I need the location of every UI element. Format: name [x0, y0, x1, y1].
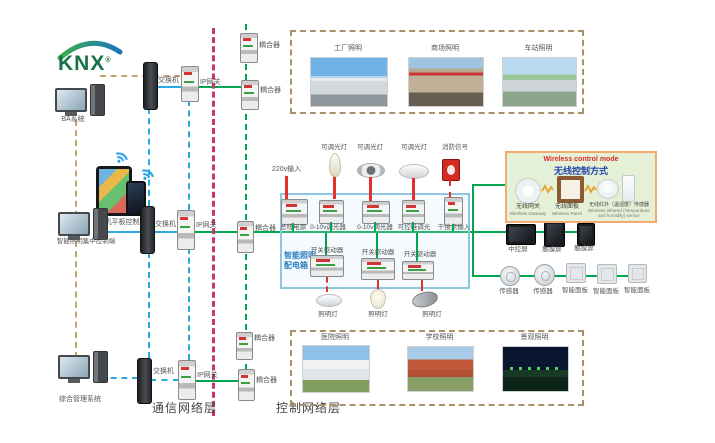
school-caption: 学校照明 — [407, 334, 472, 342]
knx-logo: KNX® — [58, 52, 112, 76]
ba-computer-monitor — [55, 88, 87, 112]
lan-link-line — [156, 86, 182, 88]
ip-gateway — [178, 360, 196, 400]
ba-computer-label: BA系统 — [50, 116, 96, 124]
line-coupler — [241, 80, 259, 110]
wireless-gateway-label-zh: 无线网关 — [516, 204, 540, 210]
dimmable-lamp-label: 可调光灯 — [395, 144, 433, 151]
wireless-control-box: Wireless control mode 无线控制方式 无线网关 Wirele… — [505, 151, 657, 223]
fire-signal-line — [449, 180, 451, 198]
smart-panel-device — [597, 264, 617, 284]
coupler-label: 耦合器 — [260, 87, 281, 95]
candle-lamp-icon — [329, 153, 341, 177]
landscape-photo — [502, 346, 569, 392]
wireless-sensor-module-icon — [622, 175, 635, 202]
touch-screen — [577, 223, 595, 246]
lamp-label: 照明灯 — [308, 311, 348, 318]
line-coupler — [237, 221, 254, 253]
wireless-sensor-label-en: Wireless infrared (Temperature and humid… — [586, 208, 652, 219]
management-computer-tower — [93, 351, 108, 383]
lan-link-line — [150, 379, 179, 381]
knx-logo-text: KNX — [58, 52, 105, 75]
ip-gateway — [177, 210, 195, 250]
monitor-computer-monitor — [58, 212, 90, 236]
wireless-gateway-labels: 无线网关 Wireless Gateway — [507, 204, 549, 217]
management-computer-monitor — [58, 355, 90, 379]
switch-label: 交换机 — [158, 77, 179, 85]
lan-trunk-line — [188, 100, 190, 210]
load-line — [421, 280, 423, 291]
smart-panel-device — [628, 264, 647, 283]
sensor-label: 传感器 — [494, 288, 524, 295]
fire-signal-label: 消防信号 — [436, 144, 474, 151]
switch-label: 交换机 — [155, 221, 176, 229]
knx-stub-line — [374, 222, 376, 232]
switch-actuator-device — [361, 258, 395, 280]
ip-gateway-label: IP网关 — [200, 79, 221, 87]
knx-stub-line — [330, 222, 332, 232]
line-coupler — [238, 369, 255, 401]
switch-actuator-label: 开关驱动器 — [356, 249, 400, 256]
factory-caption: 工厂照明 — [310, 45, 386, 53]
switch-actuator-label: 开关驱动器 — [305, 247, 349, 254]
hospital-photo — [302, 345, 370, 393]
bus-power-device — [281, 199, 308, 225]
ethernet-switch — [143, 62, 158, 110]
load-line — [412, 178, 415, 200]
monitor-computer-label: 智能照明集中控制端 — [36, 238, 136, 245]
line-coupler — [236, 332, 253, 360]
line-coupler — [240, 33, 258, 63]
smart-panel-label: 智能面板 — [589, 288, 623, 295]
dimmer-0-10v-device — [362, 201, 390, 224]
ethernet-switch — [140, 206, 155, 254]
central-screen-label: 中控屏 — [502, 246, 534, 253]
comm-layer-label: 通信网络层 — [152, 402, 217, 416]
knx-bus-line — [194, 380, 240, 382]
knx-stub-line — [412, 222, 414, 232]
spot-lamp-icon — [411, 289, 440, 310]
load-line — [326, 277, 328, 292]
sensor-device — [534, 264, 555, 286]
dry-contact-input-device — [444, 197, 463, 226]
ip-gateway-label: IP网关 — [196, 222, 217, 230]
power-input-label: 220v输入 — [272, 166, 301, 174]
wireless-panel-labels: 无线面板 Wireless Panel — [549, 204, 585, 217]
ceiling-lamp-icon — [399, 164, 429, 179]
wireless-gateway-icon — [515, 178, 541, 204]
dimmer-label: 0-10v调光器 — [302, 224, 354, 231]
load-line — [377, 280, 379, 289]
touch-screen-label: 触摸屏 — [538, 246, 566, 253]
sensor-device — [500, 266, 520, 286]
load-line — [369, 177, 372, 201]
coupler-label: 耦合器 — [254, 335, 275, 343]
mall-photo — [408, 57, 484, 107]
knx-stub-line — [452, 224, 454, 232]
ethernet-switch — [137, 358, 152, 404]
central-control-screen — [506, 224, 536, 245]
knx-bus-line — [473, 184, 506, 186]
switch-actuator-device — [402, 261, 434, 280]
ba-computer-tower — [90, 84, 105, 116]
lamp-label: 照明灯 — [358, 311, 398, 318]
lamp-label: 照明灯 — [412, 311, 452, 318]
lan-trunk-line — [148, 252, 150, 358]
wireless-panel-icon — [557, 176, 584, 203]
hospital-caption: 医院照明 — [302, 334, 368, 342]
lan-trunk-line — [148, 108, 150, 206]
bulb-lamp-icon — [370, 289, 386, 309]
lan-link-line — [153, 231, 178, 233]
lan-trunk-line — [188, 248, 190, 360]
dimmable-lamp-label: 可调光灯 — [351, 144, 389, 151]
station-caption: 车站照明 — [502, 45, 575, 53]
rf-link-icon — [584, 183, 597, 195]
diagram-canvas: KNX® BA系统 手机平板控制端 智能照明集中控制端 综合管理系统 交换机 交… — [0, 0, 715, 443]
mall-caption: 商场照明 — [408, 45, 482, 53]
smart-panel-device — [566, 263, 586, 283]
switch-label: 交换机 — [153, 368, 174, 376]
touch-screen — [544, 221, 565, 247]
switch-actuator-label: 开关驱动器 — [398, 251, 442, 258]
switch-actuator-device — [310, 255, 344, 277]
sensor-label: 传感器 — [528, 288, 558, 295]
knx-bus-line — [473, 275, 644, 277]
ip-gateway — [181, 66, 199, 102]
fire-alarm-icon — [442, 159, 460, 181]
station-photo — [502, 57, 577, 107]
thyristor-dimmer-device — [402, 200, 425, 224]
load-line — [333, 177, 336, 199]
knx-stub-line — [292, 223, 294, 232]
touch-screen-label: 触摸屏 — [570, 245, 598, 252]
power-line — [285, 176, 288, 199]
wireless-panel-label-zh: 无线面板 — [555, 204, 579, 210]
ip-gateway-label: IP网关 — [197, 372, 218, 380]
factory-photo — [310, 57, 388, 107]
wireless-gateway-label-en: Wireless Gateway — [507, 211, 549, 216]
dimmer-0-10v-device — [319, 200, 344, 224]
wireless-panel-label-en: Wireless Panel — [549, 211, 585, 216]
ceiling-lamp-icon — [316, 294, 342, 307]
coupler-label: 耦合器 — [256, 377, 277, 385]
school-photo — [407, 346, 474, 392]
smart-panel-label: 智能面板 — [558, 287, 592, 294]
management-computer-label: 综合管理系统 — [48, 396, 112, 404]
wireless-sensor-labels: 无线红外（温湿度）传感器 Wireless infrared (Temperat… — [586, 202, 652, 219]
landscape-caption: 景观照明 — [502, 334, 567, 342]
thyristor-dimmer-label: 可控硅调光 — [394, 224, 434, 231]
coupler-label: 耦合器 — [259, 42, 280, 50]
downlight-icon — [357, 163, 385, 178]
monitor-computer-tower — [93, 208, 108, 240]
rf-link-icon — [541, 183, 554, 195]
dimmable-lamp-label: 可调光灯 — [315, 144, 353, 151]
wireless-title-en: Wireless control mode — [507, 156, 655, 163]
wireless-sensor-icon — [597, 179, 619, 199]
smart-panel-label: 智能面板 — [620, 287, 654, 294]
dry-contact-label: 干接点输入 — [434, 224, 474, 231]
wifi-icon — [111, 145, 134, 166]
